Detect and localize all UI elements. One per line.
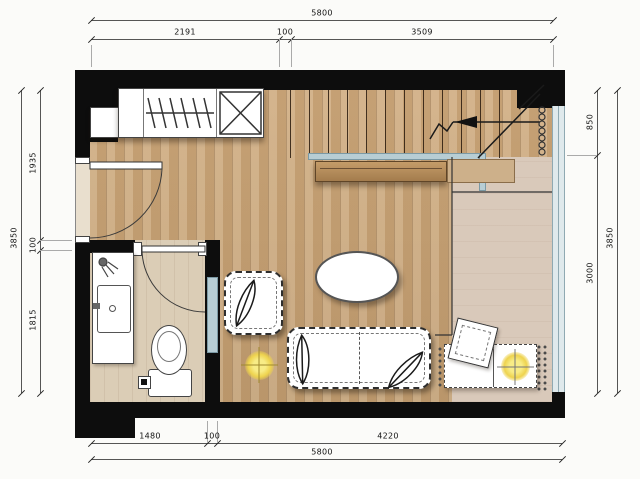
plant-yellow-2 (501, 352, 530, 381)
wall-right-bottom (552, 390, 565, 418)
dim-right-total: 3850 (606, 227, 615, 249)
dim-tick (559, 456, 566, 463)
closet (118, 88, 264, 138)
sink-drain (109, 305, 116, 312)
dim-top-seg3: 3509 (411, 28, 433, 37)
dim-left-seg3: 1815 (29, 309, 38, 331)
dim-tick (594, 390, 601, 397)
dim-ext (567, 155, 597, 156)
dim-tick (559, 440, 566, 447)
dim-right-seg1: 850 (586, 114, 595, 130)
dim-top-total: 5800 (311, 9, 333, 18)
dim-left-seg2: 100 (29, 237, 38, 253)
toilet-bowl (151, 325, 187, 375)
bath-door-jamb-right (198, 242, 207, 256)
entry-jamb-bottom (75, 236, 90, 243)
sideboard-extension (447, 159, 515, 183)
window-right (552, 106, 565, 392)
dim-right-total-line (617, 90, 618, 393)
desk-divider (493, 345, 494, 387)
dim-bottom-seg3: 4220 (377, 432, 399, 441)
armchair-cushion (230, 277, 277, 329)
dim-top-seg2: 100 (277, 28, 293, 37)
dim-tick (18, 390, 25, 397)
wall-bottom (75, 402, 565, 418)
floor-plan-canvas: 5800 2191 100 3509 1480 100 4220 5800 19… (0, 0, 640, 479)
dim-tick (37, 390, 44, 397)
wall-top (75, 70, 565, 90)
dim-tick (550, 36, 557, 43)
dim-left-seg1: 1935 (29, 152, 38, 174)
oval-table (315, 251, 399, 303)
toilet-bowl-inner (157, 331, 181, 362)
vanity-counter (92, 252, 134, 364)
entry-jamb-top (75, 157, 90, 164)
closet-shelf (90, 107, 119, 138)
sofa (287, 327, 431, 389)
dim-top-total-line (91, 20, 553, 21)
dim-left-total-line (21, 90, 22, 393)
desk-coil-edge-right (536, 344, 549, 392)
desk-chair-seat (455, 325, 491, 361)
bathroom-glass-panel (207, 277, 218, 353)
dim-bottom-seg-line (91, 443, 562, 444)
wall-left-lower (75, 238, 90, 402)
stair-treads (290, 90, 517, 158)
wall-top-right-block (517, 70, 565, 108)
sink-tap (93, 303, 100, 309)
dim-tick (550, 17, 557, 24)
sofa-seat-divider (359, 332, 360, 384)
dim-ext (40, 250, 72, 251)
bath-door-jamb-left (133, 242, 142, 256)
dim-right-seg-line (597, 90, 598, 393)
dim-left-total: 3850 (10, 227, 19, 249)
dim-right-seg2: 3000 (586, 262, 595, 284)
closet-divider (143, 89, 144, 137)
closet-divider (216, 89, 217, 137)
dim-bottom-total: 5800 (311, 448, 333, 457)
plant-yellow-1 (245, 351, 274, 380)
floor-drain-grate (141, 379, 147, 385)
dim-bottom-seg1: 1480 (139, 432, 161, 441)
dim-ext (553, 45, 554, 67)
dim-tick (614, 390, 621, 397)
sideboard-line (320, 168, 442, 169)
dim-top-seg1: 2191 (174, 28, 196, 37)
sideboard (315, 161, 447, 182)
wall-left-upper (75, 70, 90, 163)
dim-bottom-seg2: 100 (204, 432, 220, 441)
dim-ext (291, 39, 292, 67)
dim-ext (91, 45, 92, 67)
armchair (224, 271, 283, 335)
dim-top-seg-line (91, 39, 553, 40)
dim-bottom-total-line (91, 459, 562, 460)
entry-opening (75, 163, 90, 237)
dim-ext (40, 240, 72, 241)
floor-drain (138, 376, 151, 389)
wall-bottom-left-block (75, 402, 135, 438)
dim-ext (279, 39, 280, 67)
